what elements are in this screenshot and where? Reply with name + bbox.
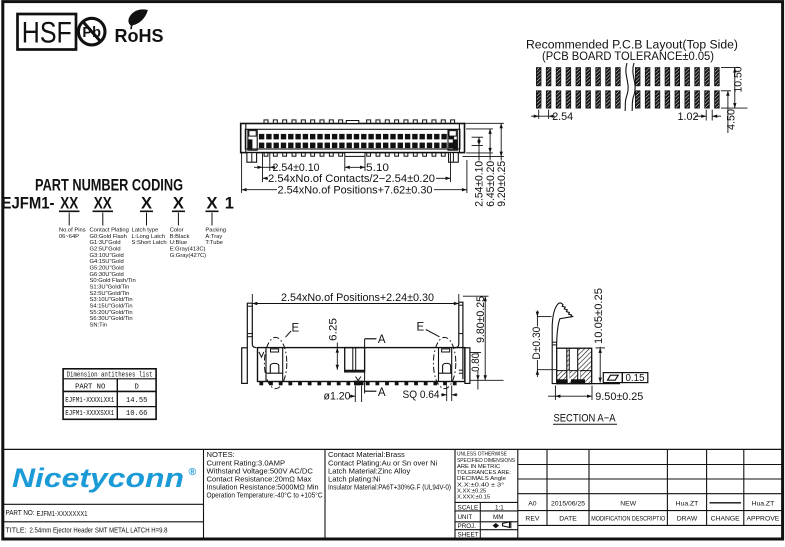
svg-text:PART NO:: PART NO: <box>6 508 35 517</box>
svg-text:CHANGE: CHANGE <box>711 516 741 523</box>
svg-text:14.55: 14.55 <box>126 397 148 405</box>
svg-text:1.02: 1.02 <box>678 111 699 123</box>
svg-text:RoHS: RoHS <box>115 25 164 46</box>
svg-text:UNLESS OTHERWISE: UNLESS OTHERWISE <box>457 452 507 458</box>
svg-text:G4:15U"Gold: G4:15U"Gold <box>90 259 124 265</box>
svg-text:ARE IN METRIC: ARE IN METRIC <box>457 464 500 470</box>
svg-text:X.X:±0.40 ± 3°: X.X:±0.40 ± 3° <box>457 482 504 488</box>
svg-text:Hua.ZT: Hua.ZT <box>752 500 775 507</box>
svg-text:06~64P: 06~64P <box>59 234 79 240</box>
svg-text:EJFM1-XXXXXXX1: EJFM1-XXXXXXX1 <box>37 511 88 518</box>
svg-text:A: A <box>378 387 386 399</box>
svg-text:9.80±0.25: 9.80±0.25 <box>475 296 487 343</box>
svg-text:6.25: 6.25 <box>328 318 340 341</box>
svg-text:E:Gray(413C): E:Gray(413C) <box>170 246 206 252</box>
svg-text:2015/06/25: 2015/06/25 <box>551 500 585 507</box>
svg-text:REV: REV <box>525 516 539 523</box>
svg-text:G2:5U"Gold: G2:5U"Gold <box>90 246 121 252</box>
svg-text:G0:Gold Flash: G0:Gold Flash <box>90 234 127 240</box>
svg-text:10.05±0.25: 10.05±0.25 <box>593 288 605 344</box>
svg-text:DECIMALS Angle: DECIMALS Angle <box>457 476 506 482</box>
svg-text:TOLERANCES ARE:: TOLERANCES ARE: <box>457 470 511 476</box>
svg-text:E: E <box>292 323 300 335</box>
svg-text:Operation Temperature:-40°C to: Operation Temperature:-40°C to +105°C <box>207 490 323 499</box>
svg-text:EJFM1-XXXXSXX1: EJFM1-XXXXSXX1 <box>65 410 114 418</box>
svg-text:S:Short Latch: S:Short Latch <box>132 240 167 246</box>
svg-text:EJFM1-XXXXLXX1: EJFM1-XXXXLXX1 <box>65 397 114 405</box>
svg-text:9.20±0.25: 9.20±0.25 <box>496 161 508 207</box>
svg-text:APPROVE: APPROVE <box>746 516 779 523</box>
svg-text:Packing: Packing <box>205 228 226 234</box>
svg-text:MM: MM <box>493 514 504 521</box>
svg-text:S1:3U"Gold/Tin: S1:3U"Gold/Tin <box>90 284 130 290</box>
svg-text:Latch type: Latch type <box>132 228 159 234</box>
svg-text:T:Tube: T:Tube <box>205 240 223 246</box>
svg-text:SN:Tin: SN:Tin <box>90 322 108 328</box>
svg-text:NEW: NEW <box>620 500 636 507</box>
svg-text:MODIFICATION DESCRIPTIO: MODIFICATION DESCRIPTIO <box>591 516 665 523</box>
svg-text:SCALE: SCALE <box>458 504 479 511</box>
svg-text:A0: A0 <box>528 500 537 507</box>
svg-text:SQ 0.64: SQ 0.64 <box>403 389 440 401</box>
svg-text:G5:20U"Gold: G5:20U"Gold <box>90 265 124 271</box>
svg-text:DRAW: DRAW <box>677 516 698 523</box>
svg-text:SECTION A−A: SECTION A−A <box>554 413 616 425</box>
svg-text:Nicetyconn: Nicetyconn <box>12 463 184 493</box>
svg-text:X.XXX:±0.15: X.XXX:±0.15 <box>457 495 490 501</box>
svg-text:ø1.20: ø1.20 <box>324 391 351 403</box>
svg-text:2.54xNo.of Positions+7.62±0.3: 2.54xNo.of Positions+7.62±0.30 <box>278 185 433 197</box>
svg-text:2.54: 2.54 <box>552 111 573 123</box>
svg-text:2.54xNo.of Contacts/2−2.54±0.: 2.54xNo.of Contacts/2−2.54±0.20 <box>268 173 435 185</box>
svg-text:PROJ.: PROJ. <box>458 523 477 530</box>
svg-text:E: E <box>417 322 425 334</box>
svg-text:X.XX:±0.25: X.XX:±0.25 <box>457 489 486 495</box>
svg-text:2.54xNo.of Positions+2.24±0.3: 2.54xNo.of Positions+2.24±0.30 <box>281 292 434 304</box>
svg-text:XX: XX <box>94 194 112 212</box>
svg-text:S2:5U"Gold/Tin: S2:5U"Gold/Tin <box>90 291 130 297</box>
svg-text:Insulator Material:PA6T+30%G.F: Insulator Material:PA6T+30%G.F (UL94V-0) <box>328 482 451 491</box>
svg-text:DATE: DATE <box>559 516 577 523</box>
svg-text:SPECIFIED DIMENSIONS: SPECIFIED DIMENSIONS <box>457 458 515 464</box>
svg-text:TITLE:: TITLE: <box>6 525 27 534</box>
svg-text:SHEET: SHEET <box>458 532 479 539</box>
svg-text:Color: Color <box>170 228 184 234</box>
svg-text:D±0.30: D±0.30 <box>531 327 543 360</box>
svg-text:G3:10U"Gold: G3:10U"Gold <box>90 253 124 259</box>
svg-text:10.66: 10.66 <box>126 410 148 418</box>
svg-text:PART NO: PART NO <box>75 384 105 392</box>
svg-text:Contact Plating: Contact Plating <box>90 228 129 234</box>
svg-text:S4:15U"Gold/Tin: S4:15U"Gold/Tin <box>90 303 133 309</box>
svg-text:HSF: HSF <box>22 17 72 50</box>
svg-text:A:Tray: A:Tray <box>205 234 222 240</box>
svg-text:U:Blue: U:Blue <box>170 240 187 246</box>
svg-text:S0:Gold Flash/Tin: S0:Gold Flash/Tin <box>90 278 136 284</box>
svg-text:Hua.ZT: Hua.ZT <box>676 500 699 507</box>
svg-text:B:Black: B:Black <box>170 234 190 240</box>
svg-text:No.of Pins: No.of Pins <box>59 228 86 234</box>
svg-text:PART NUMBER CODING: PART NUMBER CODING <box>35 176 183 195</box>
svg-text:1: 1 <box>225 194 234 212</box>
svg-text:2.54mm Ejector Header SMT ME: 2.54mm Ejector Header SMT METAL LATCH H=… <box>30 525 168 534</box>
svg-text:G6:30U"Gold: G6:30U"Gold <box>90 272 124 278</box>
svg-text:10.50: 10.50 <box>733 67 745 93</box>
svg-text:0.80: 0.80 <box>470 353 482 372</box>
svg-text:S3:10U"Gold/Tin: S3:10U"Gold/Tin <box>90 297 133 303</box>
svg-text:X: X <box>206 194 217 212</box>
svg-text:Dimension antitheses list: Dimension antitheses list <box>67 372 153 380</box>
svg-text:X: X <box>141 194 152 212</box>
svg-text:®: ® <box>189 466 197 478</box>
svg-text:1:1: 1:1 <box>495 504 504 511</box>
svg-text:9.50±0.25: 9.50±0.25 <box>595 391 643 403</box>
svg-text:L:Long Latch: L:Long Latch <box>132 234 166 240</box>
svg-text:UNIT: UNIT <box>458 514 473 521</box>
svg-text:D: D <box>135 384 139 392</box>
svg-text:EJFM1-: EJFM1- <box>2 194 55 212</box>
svg-text:S5:20U"Gold/Tin: S5:20U"Gold/Tin <box>90 310 133 316</box>
svg-text:4.50: 4.50 <box>725 109 737 130</box>
svg-text:G1:3U"Gold: G1:3U"Gold <box>90 240 121 246</box>
svg-text:S6:30U"Gold/Tin: S6:30U"Gold/Tin <box>90 316 133 322</box>
svg-text:0.15: 0.15 <box>626 373 645 384</box>
svg-text:(PCB BOARD TOLERANCE±0.05): (PCB BOARD TOLERANCE±0.05) <box>542 49 714 63</box>
svg-text:G:Gray(427C): G:Gray(427C) <box>170 253 206 259</box>
svg-text:A: A <box>378 334 386 346</box>
svg-text:XX: XX <box>60 194 78 212</box>
svg-text:X: X <box>173 194 184 212</box>
